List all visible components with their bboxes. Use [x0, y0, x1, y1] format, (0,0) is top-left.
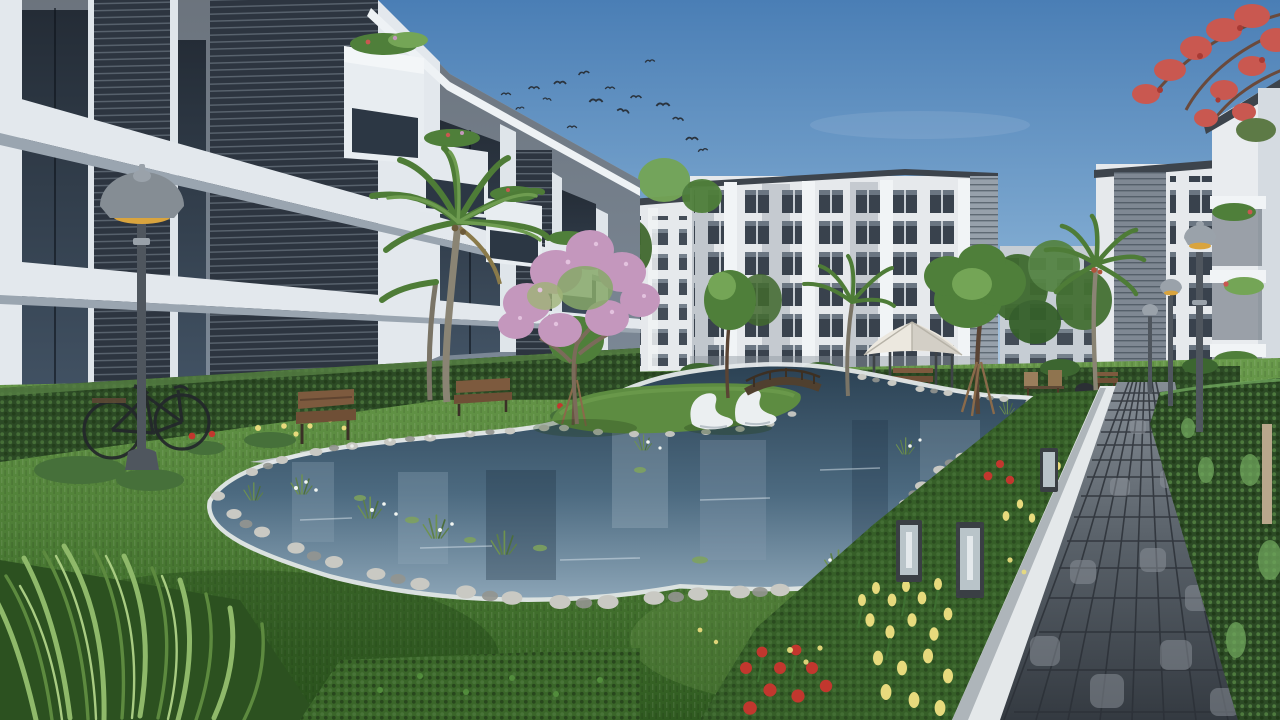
bollard-light	[956, 522, 984, 598]
branch-leaves	[1236, 118, 1276, 142]
palm-fruit	[1091, 267, 1097, 273]
bollard-light	[1040, 448, 1058, 492]
cloud-wisp	[810, 111, 1030, 139]
architectural-rendering	[0, 0, 1280, 720]
rendering-canvas	[0, 0, 1280, 720]
bollard-light	[896, 520, 922, 582]
wooden-post	[1262, 424, 1272, 524]
